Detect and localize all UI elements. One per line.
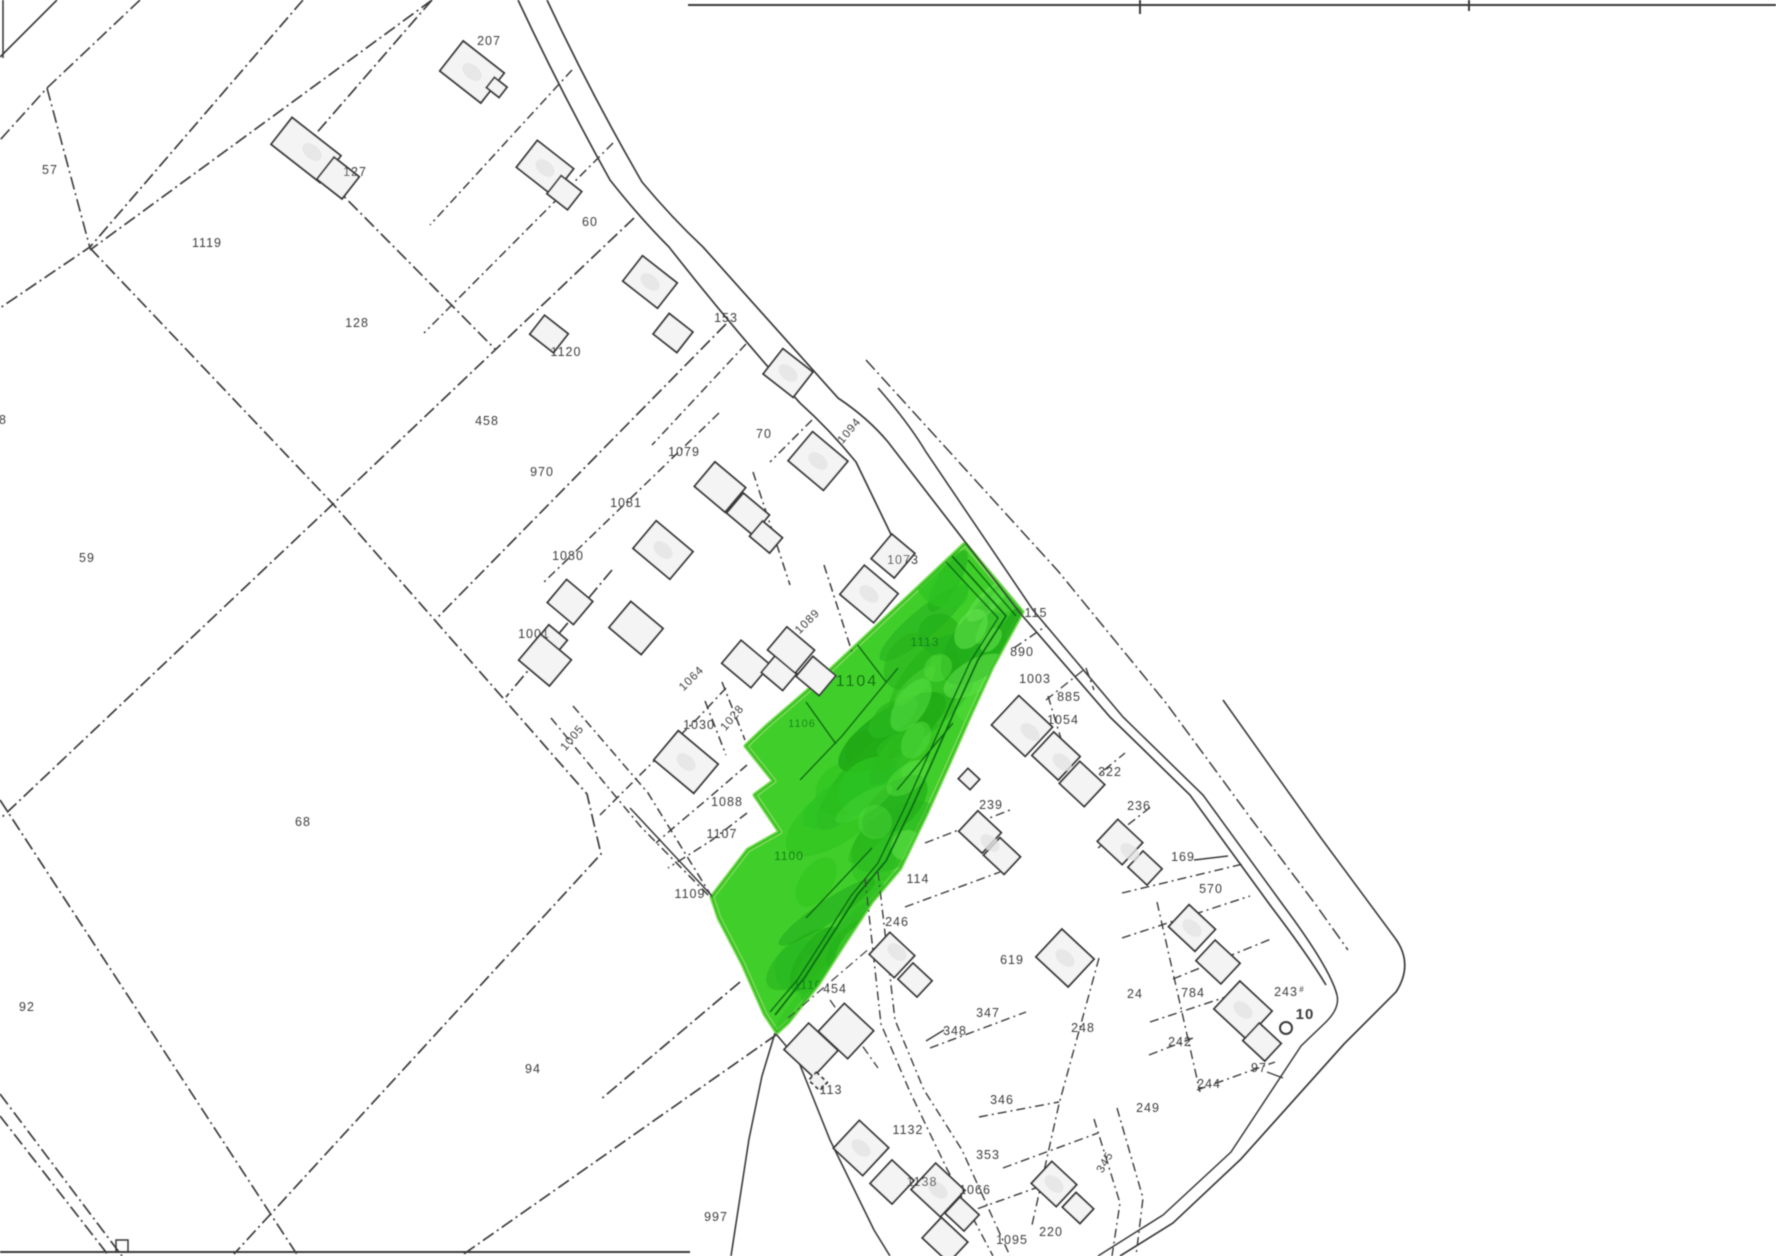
- svg-text:784: 784: [1181, 986, 1205, 1000]
- svg-text:115: 115: [1025, 606, 1048, 620]
- svg-text:243: 243: [1274, 985, 1298, 999]
- svg-text:57: 57: [42, 163, 58, 177]
- svg-text:1113: 1113: [911, 635, 940, 649]
- svg-text:59: 59: [79, 551, 95, 565]
- svg-text:24: 24: [1127, 987, 1143, 1001]
- svg-text:249: 249: [1136, 1101, 1160, 1115]
- svg-text:113: 113: [820, 1083, 843, 1097]
- svg-text:1109: 1109: [675, 887, 706, 901]
- svg-text:619: 619: [1000, 953, 1024, 967]
- svg-text:890: 890: [1010, 645, 1034, 659]
- svg-text:348: 348: [943, 1024, 967, 1038]
- svg-text:114: 114: [907, 872, 930, 886]
- svg-text:1106: 1106: [788, 718, 816, 730]
- svg-text:8: 8: [0, 413, 7, 427]
- svg-text:239: 239: [979, 798, 1003, 812]
- svg-text:1100: 1100: [774, 849, 804, 863]
- svg-text:#: #: [1299, 985, 1304, 994]
- svg-text:1079: 1079: [668, 445, 700, 459]
- svg-text:1054: 1054: [1047, 713, 1079, 727]
- svg-text:128: 128: [345, 316, 369, 330]
- svg-text:1073: 1073: [887, 553, 919, 567]
- svg-text:246: 246: [885, 915, 909, 929]
- svg-text:92: 92: [19, 1000, 35, 1014]
- svg-text:127: 127: [343, 165, 367, 179]
- svg-text:70: 70: [756, 427, 772, 441]
- svg-text:153: 153: [714, 311, 738, 325]
- svg-text:353: 353: [976, 1148, 1000, 1162]
- svg-text:1119: 1119: [192, 236, 222, 250]
- svg-text:1030: 1030: [683, 718, 715, 732]
- svg-text:1001: 1001: [518, 627, 550, 641]
- svg-text:60: 60: [582, 215, 598, 229]
- svg-text:169: 169: [1171, 850, 1195, 864]
- svg-text:1120: 1120: [551, 345, 582, 359]
- svg-text:347: 347: [976, 1006, 1000, 1020]
- svg-text:970: 970: [530, 465, 554, 479]
- svg-text:236: 236: [1127, 799, 1151, 813]
- svg-text:207: 207: [477, 34, 501, 48]
- svg-text:1095: 1095: [996, 1233, 1028, 1247]
- svg-text:1081: 1081: [610, 496, 642, 510]
- svg-text:885: 885: [1057, 690, 1081, 704]
- svg-text:220: 220: [1039, 1225, 1063, 1239]
- svg-text:244: 244: [1197, 1077, 1221, 1091]
- svg-text:1138: 1138: [907, 1175, 938, 1189]
- svg-text:68: 68: [295, 815, 311, 829]
- svg-text:1104: 1104: [836, 673, 878, 690]
- svg-text:1066: 1066: [959, 1183, 991, 1197]
- svg-text:570: 570: [1199, 882, 1223, 896]
- svg-text:1003: 1003: [1019, 672, 1051, 686]
- svg-text:10: 10: [1296, 1006, 1315, 1023]
- svg-text:97: 97: [1251, 1061, 1267, 1075]
- svg-text:997: 997: [704, 1210, 728, 1224]
- svg-text:1088: 1088: [711, 795, 743, 809]
- svg-text:248: 248: [1071, 1021, 1095, 1035]
- svg-text:322: 322: [1098, 765, 1122, 779]
- svg-text:1080: 1080: [552, 549, 584, 563]
- svg-text:346: 346: [990, 1093, 1014, 1107]
- svg-text:1132: 1132: [893, 1123, 924, 1137]
- svg-text:1107: 1107: [707, 827, 738, 841]
- svg-text:458: 458: [475, 414, 499, 428]
- svg-text:454: 454: [823, 982, 847, 996]
- svg-text:94: 94: [525, 1062, 541, 1076]
- svg-text:242: 242: [1168, 1035, 1192, 1049]
